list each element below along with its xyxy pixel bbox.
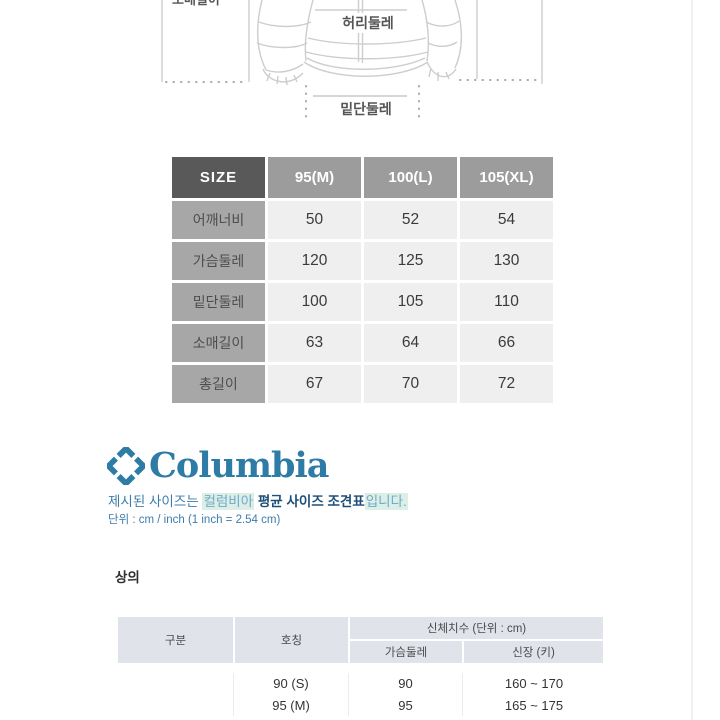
col-chest: 가슴둘레 — [350, 641, 462, 663]
columbia-logo-icon — [107, 447, 145, 485]
body-size-table-body: 90 (S) 90 160 ~ 170 95 (M) 95 165 ~ 175 — [118, 663, 605, 716]
table-row: 어깨너비 50 52 54 — [172, 201, 553, 239]
size-notice: 제시된 사이즈는 컬럼비아 평균 사이즈 조견표입니다. — [108, 493, 408, 511]
row-label-total-length: 총길이 — [172, 365, 265, 403]
col-body-measure-group: 신체치수 (단위 : cm) — [350, 617, 603, 639]
cell-value: 67 — [268, 365, 361, 403]
right-edge-divider — [691, 0, 693, 720]
cell-chest: 90 — [348, 673, 462, 695]
waist-circumference-label: 허리둘레 — [342, 15, 394, 31]
jacket-drawing-svg: 소매길이 허리둘레 밑단둘레 — [150, 0, 570, 120]
hem-circumference-label: 밑단둘레 — [340, 101, 392, 117]
col-size-name: 호칭 — [235, 617, 348, 663]
row-label-sleeve: 소매길이 — [172, 324, 265, 362]
sleeve-length-label-clipped: 소매길이 — [172, 0, 220, 7]
cell-size-name: 90 (S) — [233, 673, 348, 695]
col-height: 신장 (키) — [464, 641, 603, 663]
body-size-table-header: 구분 호칭 신체치수 (단위 : cm) 가슴둘레 신장 (키) — [118, 617, 605, 663]
brand-block: Columbia — [107, 447, 328, 485]
cell-value: 100 — [268, 283, 361, 321]
size-col-105xl: 105(XL) — [460, 157, 553, 198]
cell-value: 125 — [364, 242, 457, 280]
cell-value: 66 — [460, 324, 553, 362]
table-row: 90 (S) 90 160 ~ 170 — [118, 673, 605, 695]
table-row: 총길이 67 70 72 — [172, 365, 553, 403]
cell-value: 50 — [268, 201, 361, 239]
size-guide-page: 소매길이 허리둘레 밑단둘레 SIZE 95(M) 100(L) 105(XL)… — [0, 0, 720, 720]
cell-value: 130 — [460, 242, 553, 280]
table-row: 소매길이 63 64 66 — [172, 324, 553, 362]
cell-size-name: 95 (M) — [233, 695, 348, 717]
cell-value: 63 — [268, 324, 361, 362]
unit-note: 단위 : cm / inch (1 inch = 2.54 cm) — [108, 511, 280, 527]
cell-value: 120 — [268, 242, 361, 280]
table-row: 95 (M) 95 165 ~ 175 — [118, 695, 605, 717]
row-label-hem: 밑단둘레 — [172, 283, 265, 321]
cell-category-empty — [118, 673, 233, 695]
garment-size-table: SIZE 95(M) 100(L) 105(XL) 어깨너비 50 52 54 … — [169, 154, 556, 406]
size-table-header-row: SIZE 95(M) 100(L) 105(XL) — [172, 157, 553, 198]
cell-value: 105 — [364, 283, 457, 321]
size-col-100l: 100(L) — [364, 157, 457, 198]
cell-value: 52 — [364, 201, 457, 239]
cell-height: 165 ~ 175 — [462, 695, 605, 717]
size-col-95m: 95(M) — [268, 157, 361, 198]
col-category: 구분 — [118, 617, 233, 663]
row-label-shoulder: 어깨너비 — [172, 201, 265, 239]
notice-bold: 평균 사이즈 조견표 — [254, 494, 365, 509]
cell-category-empty — [118, 695, 233, 717]
section-title-tops: 상의 — [115, 566, 140, 586]
cell-value: 64 — [364, 324, 457, 362]
jacket-outline — [257, 0, 461, 85]
table-row: 밑단둘레 100 105 110 — [172, 283, 553, 321]
columbia-wordmark: Columbia — [149, 447, 328, 485]
cell-height: 160 ~ 170 — [462, 673, 605, 695]
notice-lead: 제시된 사이즈는 — [108, 494, 202, 509]
cell-value: 110 — [460, 283, 553, 321]
row-label-chest: 가슴둘레 — [172, 242, 265, 280]
cell-value: 54 — [460, 201, 553, 239]
jacket-diagram: 소매길이 허리둘레 밑단둘레 — [150, 0, 570, 120]
size-header-cell: SIZE — [172, 157, 265, 198]
cell-chest: 95 — [348, 695, 462, 717]
notice-tail-highlight: 입니다. — [365, 493, 408, 510]
body-size-table: 구분 호칭 신체치수 (단위 : cm) 가슴둘레 신장 (키) 90 (S) … — [118, 617, 605, 716]
notice-brand-highlight: 컬럼비아 — [202, 493, 254, 510]
cell-value: 72 — [460, 365, 553, 403]
cell-value: 70 — [364, 365, 457, 403]
table-row: 가슴둘레 120 125 130 — [172, 242, 553, 280]
